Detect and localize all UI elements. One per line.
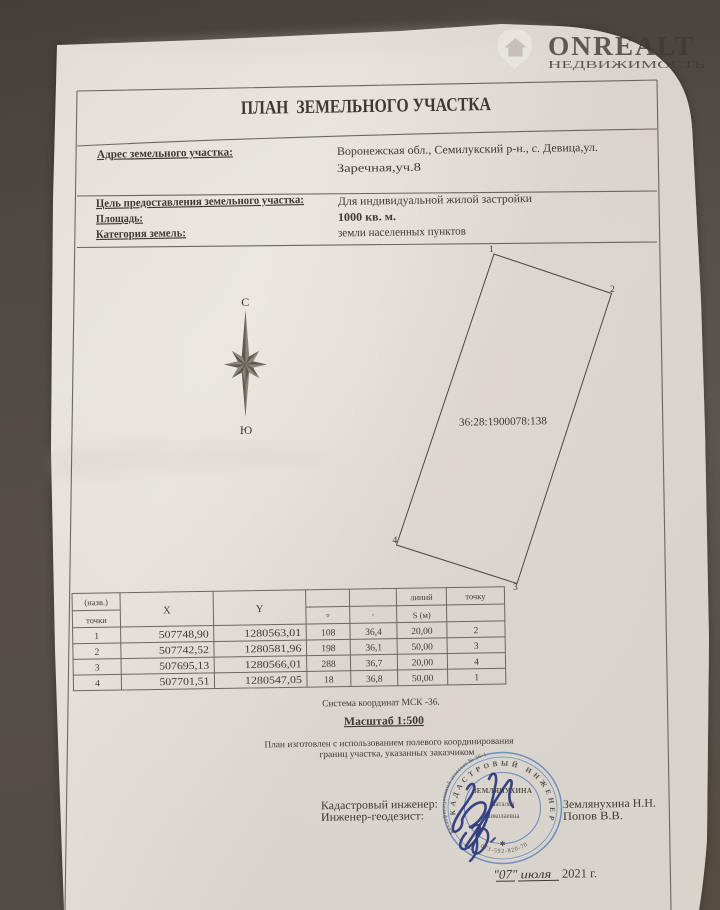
svg-text:1: 1	[474, 673, 479, 683]
svg-text:2021 г.: 2021 г.	[562, 866, 597, 881]
svg-text:1: 1	[489, 245, 494, 255]
svg-text:Система координат МСК -36.: Система координат МСК -36.	[322, 698, 440, 710]
svg-text:50,00: 50,00	[412, 674, 434, 684]
svg-text:Площадь:: Площадь:	[96, 213, 143, 226]
svg-text:Масштаб 1:500: Масштаб 1:500	[344, 715, 424, 728]
svg-text:(назв.): (назв.)	[84, 597, 108, 607]
svg-text:земли населенных пунктов: земли населенных пунктов	[338, 225, 467, 239]
svg-text:НЕДВИЖИМОСТЬ: НЕДВИЖИМОСТЬ	[548, 60, 705, 71]
svg-text:36,8: 36,8	[366, 675, 383, 685]
svg-text:ПЛАН ЗЕМЕЛЬНОГО УЧАСТКА: ПЛАН ЗЕМЕЛЬНОГО УЧАСТКА	[241, 94, 492, 119]
svg-text:507748,90: 507748,90	[159, 629, 209, 641]
svg-text:18: 18	[324, 675, 334, 685]
svg-text:1280581,96: 1280581,96	[244, 644, 301, 656]
svg-text:ONREALT: ONREALT	[548, 31, 695, 61]
svg-text:507701,51: 507701,51	[159, 676, 209, 688]
svg-text:507742,52: 507742,52	[159, 645, 209, 657]
svg-text:2: 2	[610, 285, 615, 295]
svg-text:4: 4	[474, 658, 479, 668]
svg-text:Категория земель:: Категория земель:	[96, 227, 186, 241]
svg-text:2: 2	[94, 648, 99, 658]
svg-text:Николаевна: Николаевна	[485, 813, 519, 820]
svg-text:X: X	[163, 605, 171, 616]
svg-text:1000 кв. м.: 1000 кв. м.	[338, 211, 396, 224]
svg-text:1280547,05: 1280547,05	[245, 675, 302, 687]
svg-text:Инженер-геодезист:: Инженер-геодезист:	[321, 810, 424, 824]
svg-text:4: 4	[95, 679, 100, 689]
svg-text:36,1: 36,1	[365, 643, 382, 653]
svg-text:линий: линий	[410, 592, 433, 602]
svg-text:Y: Y	[256, 604, 264, 615]
svg-text:точки: точки	[86, 615, 107, 625]
svg-text:507695,13: 507695,13	[159, 661, 209, 673]
svg-text:20,00: 20,00	[412, 658, 434, 668]
svg-text:точку: точку	[465, 591, 486, 601]
svg-text:Ю: Ю	[240, 423, 252, 437]
svg-text:2: 2	[474, 626, 479, 636]
svg-text:4: 4	[393, 536, 398, 546]
svg-text:✱: ✱	[500, 840, 506, 848]
svg-text:июля: июля	[520, 867, 552, 881]
svg-text:1280566,01: 1280566,01	[245, 659, 302, 671]
svg-text:S (м): S (м)	[413, 610, 431, 620]
svg-text:3: 3	[513, 583, 518, 593]
svg-text:3: 3	[95, 663, 100, 673]
svg-text:36,4: 36,4	[365, 628, 382, 638]
svg-text:288: 288	[321, 660, 336, 670]
svg-text:50,00: 50,00	[411, 643, 433, 653]
svg-text:"07": "07"	[493, 866, 518, 881]
svg-text:Землянухина Н.Н.: Землянухина Н.Н.	[563, 798, 656, 811]
svg-text:Попов В.В.: Попов В.В.	[563, 810, 623, 823]
svg-text:С: С	[241, 295, 249, 309]
svg-text:198: 198	[321, 644, 336, 654]
svg-text:Заречная,уч.8: Заречная,уч.8	[337, 162, 421, 175]
svg-text:°: °	[326, 612, 330, 622]
svg-text:3: 3	[474, 642, 479, 652]
svg-text:1: 1	[94, 632, 99, 642]
svg-text:36:28:1900078:138: 36:28:1900078:138	[459, 415, 548, 429]
svg-text:20,00: 20,00	[411, 627, 433, 637]
svg-text:108: 108	[321, 628, 336, 638]
svg-text:1280563,01: 1280563,01	[244, 628, 301, 640]
svg-text:36,7: 36,7	[366, 659, 383, 669]
